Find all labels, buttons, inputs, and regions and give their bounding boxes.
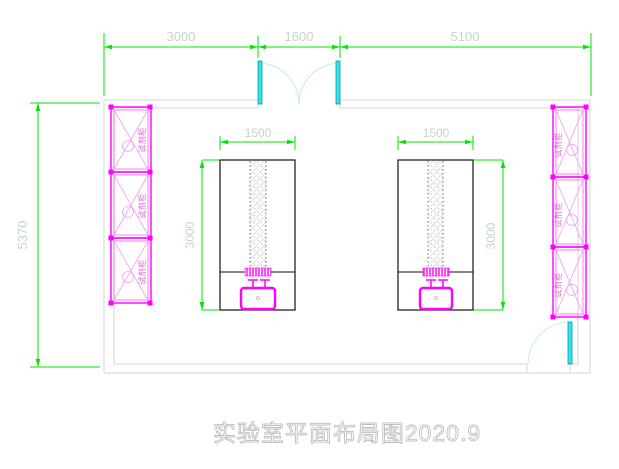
dimension-label-bench-depth: 3000 bbox=[484, 222, 498, 249]
cabinet-label: 试剂柜 bbox=[137, 193, 147, 219]
reagent-cabinet: 试剂柜 bbox=[111, 238, 151, 303]
door-leaf-right bbox=[336, 61, 340, 104]
dimension-bench-right: 1500 3000 bbox=[398, 126, 505, 310]
sink-icon bbox=[241, 288, 275, 309]
door-swing-arc bbox=[299, 63, 340, 104]
drip-rack-icon bbox=[245, 268, 271, 276]
door-bottom-right bbox=[528, 322, 572, 364]
door-leaf bbox=[568, 322, 572, 364]
bench-center-shelf bbox=[250, 161, 266, 268]
reagent-cabinet: 试剂柜 bbox=[111, 172, 151, 238]
door-swing-arc bbox=[258, 63, 299, 104]
lab-bench-island-left bbox=[220, 160, 295, 310]
dimension-label-top-middle: 1600 bbox=[285, 29, 314, 44]
door-leaf-left bbox=[258, 61, 262, 104]
cad-canvas: 3000 1600 5100 5370 试剂柜 bbox=[0, 0, 619, 469]
wall-outline bbox=[104, 100, 590, 373]
cabinet-label: 试剂柜 bbox=[553, 272, 563, 298]
dimension-label-bench-depth: 3000 bbox=[183, 221, 197, 248]
reagent-cabinets-left: 试剂柜 试剂柜 试剂柜 bbox=[109, 105, 153, 306]
reagent-cabinet: 试剂柜 bbox=[553, 247, 586, 317]
cabinet-label: 试剂柜 bbox=[137, 259, 147, 285]
dimension-label-top-right: 5100 bbox=[451, 29, 480, 44]
dimension-label-bench-width: 1500 bbox=[245, 126, 272, 140]
dimension-top: 3000 1600 5100 bbox=[104, 29, 591, 96]
drip-rack-icon bbox=[423, 268, 449, 276]
cabinet-label: 试剂柜 bbox=[553, 132, 563, 158]
bench-center-shelf bbox=[428, 161, 443, 268]
reagent-cabinet: 试剂柜 bbox=[553, 177, 586, 247]
cabinet-label: 试剂柜 bbox=[137, 127, 147, 153]
drawing-title: 实验室平面布局图2020.9 bbox=[213, 420, 481, 446]
double-door-top bbox=[258, 61, 340, 104]
reagent-cabinet: 试剂柜 bbox=[553, 107, 586, 177]
door-swing-arc bbox=[528, 322, 570, 364]
dimension-label-top-left: 3000 bbox=[167, 29, 196, 44]
dimension-left-wall: 5370 bbox=[15, 103, 100, 367]
lab-bench-island-right bbox=[398, 160, 473, 310]
dimension-bench-left: 1500 3000 bbox=[183, 126, 295, 310]
reagent-cabinets-right: 试剂柜 试剂柜 试剂柜 bbox=[551, 105, 589, 320]
reagent-cabinet: 试剂柜 bbox=[111, 107, 151, 172]
dimension-label-left-wall: 5370 bbox=[15, 221, 30, 250]
floor-plan-drawing: 3000 1600 5100 5370 试剂柜 bbox=[0, 0, 619, 469]
dimension-label-bench-width: 1500 bbox=[423, 126, 450, 140]
cabinet-label: 试剂柜 bbox=[553, 202, 563, 228]
sink-icon bbox=[420, 288, 452, 309]
